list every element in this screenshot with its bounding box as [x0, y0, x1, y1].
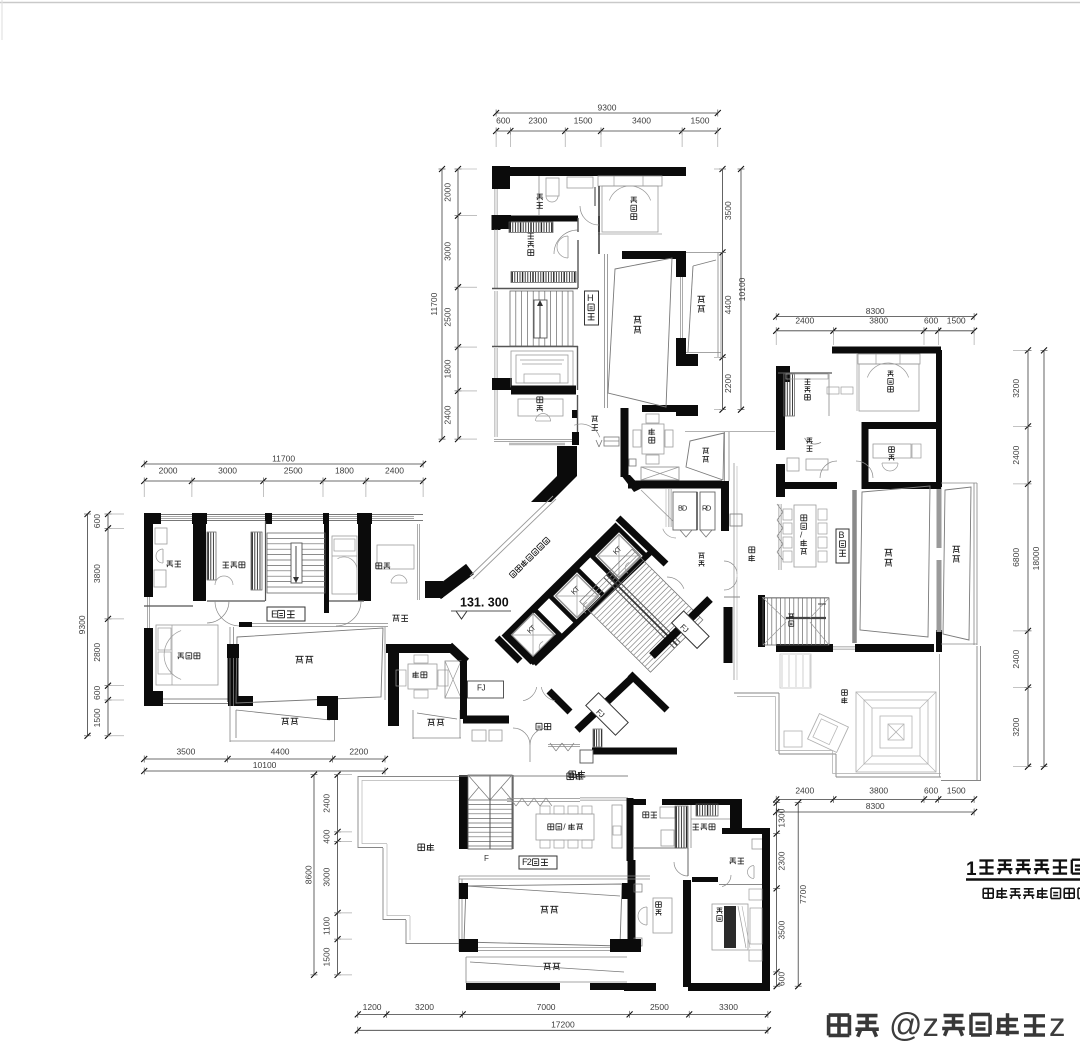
svg-text:F: F [484, 854, 489, 863]
svg-text:9300: 9300 [598, 103, 617, 113]
svg-text:2500: 2500 [650, 1002, 669, 1012]
svg-text:2400: 2400 [443, 405, 453, 424]
svg-text:E: E [271, 609, 278, 620]
svg-text:17200: 17200 [551, 1019, 575, 1029]
svg-text:600: 600 [92, 514, 102, 528]
svg-text:B: B [839, 530, 845, 540]
svg-text:1500: 1500 [92, 708, 102, 727]
svg-text:@z: @z [889, 1006, 939, 1043]
svg-text:H: H [587, 293, 594, 303]
svg-text:1300: 1300 [777, 808, 787, 827]
svg-text:2400: 2400 [322, 794, 332, 813]
svg-text:8300: 8300 [866, 801, 885, 811]
svg-text:600: 600 [496, 116, 510, 126]
svg-text:3200: 3200 [1011, 717, 1021, 736]
svg-text:3800: 3800 [869, 785, 888, 795]
svg-text:3400: 3400 [632, 116, 651, 126]
svg-text:1500: 1500 [947, 785, 966, 795]
svg-text:3000: 3000 [443, 242, 453, 261]
svg-text:1: 1 [966, 859, 977, 880]
svg-text:3200: 3200 [1011, 379, 1021, 398]
svg-text:2300: 2300 [777, 851, 787, 870]
svg-text:4400: 4400 [271, 747, 290, 757]
svg-text:7700: 7700 [798, 885, 808, 904]
svg-text:3000: 3000 [218, 466, 237, 476]
svg-text:2400: 2400 [795, 785, 814, 795]
svg-text:2500: 2500 [284, 466, 303, 476]
svg-text:1500: 1500 [574, 116, 593, 126]
svg-text:10100: 10100 [253, 760, 277, 770]
svg-text:1100: 1100 [322, 917, 332, 936]
svg-text:3200: 3200 [415, 1002, 434, 1012]
svg-text:11700: 11700 [429, 292, 439, 315]
svg-text:J: J [482, 683, 486, 692]
svg-text:2000: 2000 [159, 466, 178, 476]
svg-text:D: D [706, 504, 711, 513]
svg-text:2400: 2400 [1011, 649, 1021, 668]
svg-text:11700: 11700 [272, 454, 295, 464]
svg-text:4400: 4400 [723, 295, 733, 314]
svg-text:2200: 2200 [349, 747, 368, 757]
svg-text:600: 600 [777, 972, 787, 986]
svg-text:131. 300: 131. 300 [460, 596, 509, 610]
svg-text:3000: 3000 [322, 867, 332, 886]
svg-text:10100: 10100 [737, 277, 747, 301]
svg-text:3500: 3500 [723, 201, 733, 220]
svg-text:2000: 2000 [443, 183, 453, 202]
svg-text:1500: 1500 [691, 116, 710, 126]
svg-text:2200: 2200 [723, 374, 733, 393]
svg-text:z: z [1049, 1006, 1066, 1043]
svg-text:9300: 9300 [77, 615, 87, 634]
svg-text:2400: 2400 [385, 466, 404, 476]
svg-text:8300: 8300 [866, 306, 885, 316]
svg-text:600: 600 [924, 785, 938, 795]
svg-text:D: D [682, 504, 687, 513]
svg-text:6800: 6800 [1011, 548, 1021, 567]
svg-text:3500: 3500 [777, 920, 787, 939]
svg-text:1800: 1800 [335, 466, 354, 476]
svg-text:2400: 2400 [1011, 445, 1021, 464]
svg-text:2300: 2300 [528, 116, 547, 126]
svg-text:18000: 18000 [1031, 546, 1041, 570]
svg-text:1500: 1500 [322, 947, 332, 966]
svg-text:400: 400 [322, 829, 332, 843]
svg-text:1800: 1800 [443, 359, 453, 378]
svg-text:3500: 3500 [176, 747, 195, 757]
svg-text:600: 600 [92, 686, 102, 700]
svg-text:7000: 7000 [537, 1002, 556, 1012]
svg-text:2500: 2500 [443, 307, 453, 326]
svg-text:8600: 8600 [304, 865, 314, 884]
svg-text:2800: 2800 [92, 643, 102, 662]
svg-text:3800: 3800 [92, 564, 102, 583]
svg-text:1200: 1200 [363, 1002, 382, 1012]
svg-text:3300: 3300 [719, 1002, 738, 1012]
svg-text:2: 2 [527, 857, 532, 867]
